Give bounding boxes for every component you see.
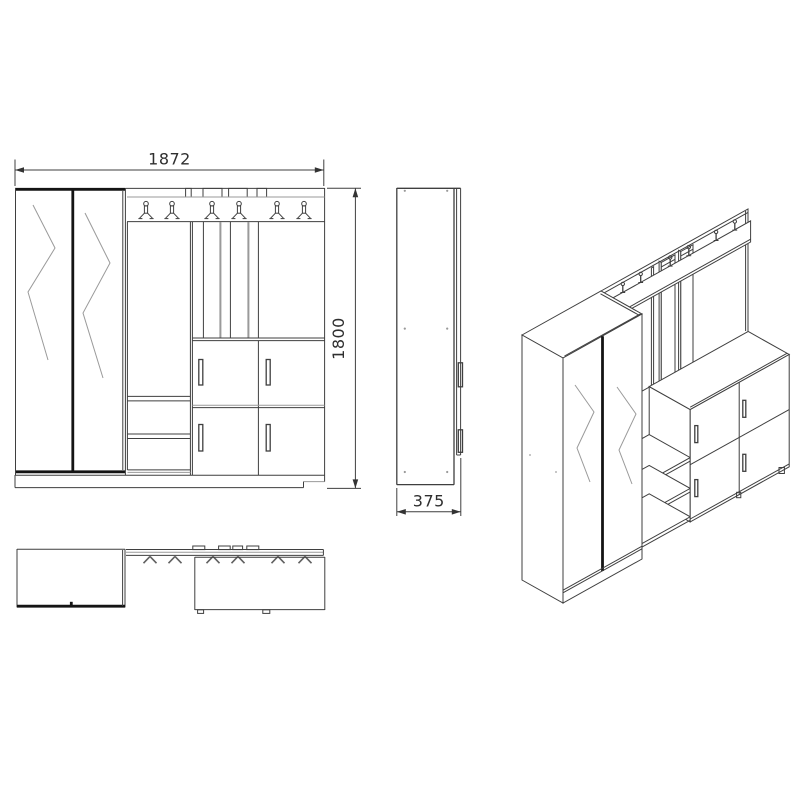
- slat-tab: [229, 188, 248, 197]
- fitting-mark: [446, 190, 448, 192]
- arrowhead-right: [315, 167, 324, 173]
- top-cabinet: [195, 557, 325, 613]
- hook-icon: [169, 556, 182, 563]
- door-handle: [199, 360, 203, 386]
- fitting-mark: [404, 328, 406, 330]
- mirror-decor-left: [28, 205, 55, 360]
- dimension-width: 1872: [15, 150, 324, 187]
- arrowhead-down: [353, 479, 359, 488]
- door-handle: [266, 425, 270, 452]
- side-body: [397, 188, 463, 485]
- hook-icon: [296, 201, 311, 218]
- door-handle: [199, 425, 203, 452]
- door-handle: [266, 360, 270, 386]
- front-wardrobe: [15, 188, 127, 475]
- dimension-height: 1800: [327, 188, 361, 488]
- arrowhead-left: [397, 509, 406, 515]
- foot: [198, 610, 204, 614]
- front-top-panel: [125, 188, 324, 475]
- drawing-svg: 1872 1800: [0, 0, 800, 800]
- iso-wardrobe: [522, 291, 642, 603]
- slat-tab: [203, 188, 222, 197]
- hook-icon: [138, 201, 153, 218]
- arrowhead-up: [353, 188, 359, 197]
- fitting-mark: [555, 471, 557, 473]
- slat-tab: [257, 188, 267, 197]
- fitting-mark: [446, 328, 448, 330]
- front-open-column: [128, 222, 193, 475]
- hook-icon: [164, 201, 179, 218]
- fitting-mark: [529, 454, 531, 456]
- front-view: 1872 1800: [15, 150, 361, 489]
- side-view: 375: [397, 188, 463, 516]
- isometric-view: [522, 209, 789, 603]
- depth-dimension-label: 375: [413, 492, 445, 511]
- hook-icon: [231, 201, 246, 218]
- hook-icon: [269, 201, 284, 218]
- mirror-decor-right: [83, 213, 110, 378]
- dimension-depth: 375: [397, 458, 461, 516]
- front-hook-rail: [127, 197, 325, 222]
- hook-icon: [144, 556, 157, 563]
- front-plinth: [15, 475, 325, 488]
- arrowhead-left: [15, 167, 24, 173]
- slat-tab: [186, 188, 192, 197]
- front-cabinet: [192, 338, 324, 475]
- hook-icon: [204, 201, 219, 218]
- arrowhead-right: [452, 509, 461, 515]
- fitting-mark: [404, 471, 406, 473]
- top-wardrobe: [17, 549, 125, 607]
- fitting-mark: [404, 190, 406, 192]
- technical-drawing-canvas: 1872 1800: [0, 0, 800, 800]
- front-slats: [203, 222, 258, 338]
- fitting-mark: [446, 471, 448, 473]
- width-dimension-label: 1872: [148, 150, 191, 169]
- height-dimension-label: 1800: [329, 317, 348, 360]
- foot: [263, 610, 270, 614]
- top-view: [17, 546, 325, 613]
- top-back-panel: [126, 546, 323, 563]
